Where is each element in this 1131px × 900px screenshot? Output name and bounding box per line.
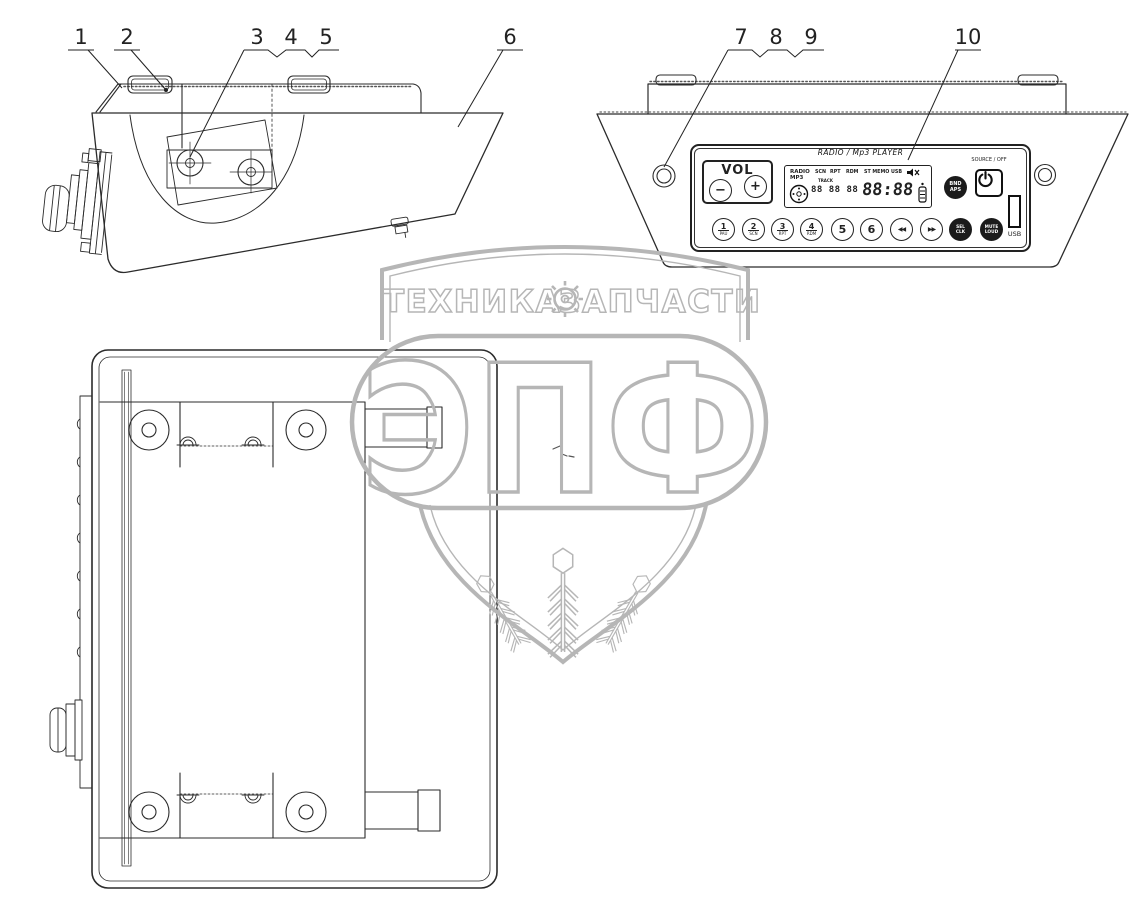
drain-fitting — [391, 217, 411, 239]
leader-1 — [88, 50, 122, 88]
callout-bracket-7-8-9 — [728, 50, 824, 57]
preset-button-3: 3RPT — [771, 218, 794, 241]
technical-drawing-layer — [0, 0, 1131, 900]
brand-band — [352, 336, 766, 508]
display-mode-label: RADIO MP3 — [790, 169, 810, 181]
display-flag-rdm: RDM — [846, 170, 858, 175]
preset-button-6: 6 — [860, 218, 883, 241]
panel-bolt-right — [1035, 165, 1056, 186]
callout-bracket-3-4-5 — [244, 50, 339, 57]
parts-diagram-canvas: ТЕХНИКА ЗАПЧАСТИ ЭПФ RADIO / Mp3 PLAYER … — [0, 0, 1131, 900]
large-digits: 88:88 — [861, 180, 914, 200]
radio-title: RADIO / Mp3 PLAYER — [692, 148, 1029, 157]
wheat-ears — [471, 548, 657, 657]
display-flag-rpt: RPT — [830, 170, 840, 175]
small-digits: 88 88 88 — [811, 185, 858, 195]
gear-icon — [547, 281, 583, 317]
preset-button-2: 2SCN — [742, 218, 765, 241]
lcd-display: RADIO MP3 SCN RPT RDM ST MEMO USB TRACK … — [784, 165, 932, 208]
callout-layer: 1 2 3 4 5 6 7 8 9 10 — [0, 0, 1131, 900]
radio-front-panel: RADIO / Mp3 PLAYER VOL − + RADIO MP3 SCN… — [690, 144, 1031, 252]
loose-screw-marks — [553, 446, 574, 457]
watermark-right-word: ЗАПЧАСТИ — [559, 284, 762, 320]
callout-5: 5 — [319, 25, 332, 49]
leader-2 — [131, 50, 166, 90]
source-off-label: SOURCE / OFF — [954, 157, 1024, 163]
callout-8: 8 — [769, 25, 782, 49]
callout-10: 10 — [955, 25, 982, 49]
side-view-drawing — [40, 76, 503, 272]
mute-loud-button: MUTELOUD — [980, 218, 1003, 241]
volume-up-button: + — [744, 175, 767, 198]
callout-1: 1 — [74, 25, 87, 49]
volume-panel: VOL − + — [702, 160, 773, 204]
watermark-shield: ТЕХНИКА ЗАПЧАСТИ ЭПФ — [0, 0, 1131, 900]
plan-view-drawing — [50, 350, 574, 888]
plan-connector — [50, 700, 82, 760]
panel-bolt-left — [653, 165, 675, 187]
callout-3: 3 — [250, 25, 263, 49]
seek-back-button: ◀◀ — [890, 218, 913, 241]
callout-9: 9 — [804, 25, 817, 49]
band-aps-button: BND APS — [944, 176, 967, 199]
track-label: TRACK — [818, 178, 833, 183]
display-flag-usb: USB — [891, 170, 902, 175]
preset-button-5: 5 — [831, 218, 854, 241]
seek-forward-button: ▶▶ — [920, 218, 943, 241]
callout-6: 6 — [503, 25, 516, 49]
sel-clk-button: SELCLK — [949, 218, 972, 241]
callout-2: 2 — [120, 25, 133, 49]
leader-6 — [458, 50, 503, 127]
callout-7: 7 — [734, 25, 747, 49]
brand-letters: ЭПФ — [360, 327, 760, 534]
preset-button-1: 1PAU — [712, 218, 735, 241]
shield-bowl — [420, 505, 706, 662]
display-flag-stmemo: ST MEMO — [864, 170, 889, 175]
connector-stack — [40, 145, 113, 255]
preset-button-4: 4RDM — [800, 218, 823, 241]
power-button — [975, 169, 1003, 197]
screw-crosshair-2 — [230, 151, 272, 193]
display-flag-scn: SCN — [815, 170, 826, 175]
watermark-left-word: ТЕХНИКА — [383, 284, 561, 320]
usb-port-label: USB — [1001, 230, 1028, 238]
screw-crosshair-1 — [169, 142, 211, 184]
volume-down-button: − — [709, 179, 732, 202]
usb-port — [1008, 195, 1021, 228]
callout-4: 4 — [284, 25, 297, 49]
shield-banner — [382, 247, 748, 340]
leader-3-4-5 — [190, 50, 244, 157]
